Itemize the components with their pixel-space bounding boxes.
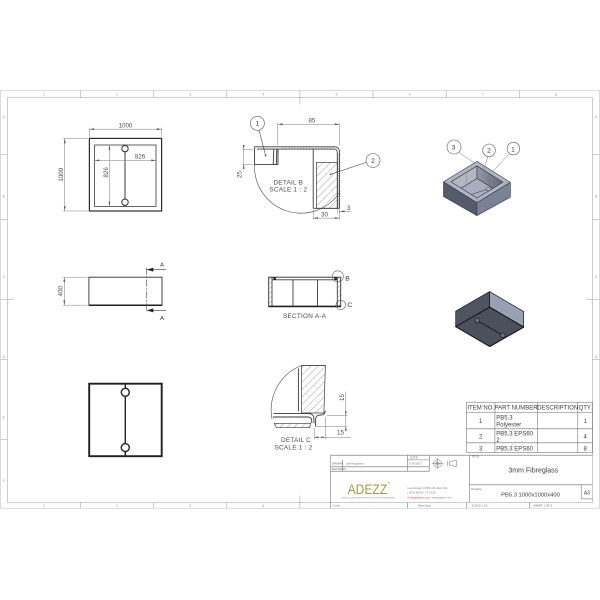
svg-text:SHEET 1 OF 5: SHEET 1 OF 5: [533, 504, 553, 508]
svg-text:1000: 1000: [58, 167, 65, 181]
svg-text:2: 2: [116, 504, 118, 508]
svg-text:1: 1: [256, 121, 260, 128]
svg-text:DETAIL B: DETAIL B: [273, 179, 303, 186]
svg-text:2: 2: [371, 158, 375, 165]
svg-text:e info@adezz.com / www.adezz.c: e info@adezz.com / www.adezz.com: [408, 496, 453, 500]
svg-text:A: A: [160, 263, 164, 269]
svg-text:1000: 1000: [119, 123, 133, 130]
svg-text:3: 3: [189, 504, 191, 508]
svg-text:85: 85: [308, 118, 315, 125]
svg-text:B: B: [345, 276, 350, 283]
svg-text:400: 400: [58, 285, 65, 296]
svg-text:DETAIL C: DETAIL C: [281, 437, 311, 444]
svg-text:Mass (kg): Mass (kg): [418, 504, 431, 508]
svg-text:Color: Color: [333, 504, 340, 508]
svg-text:Leemstraat 4, 5451 AB Uden (NL: Leemstraat 4, 5451 AB Uden (NL).: [408, 486, 449, 490]
svg-text:3: 3: [189, 93, 191, 97]
svg-text:2: 2: [116, 93, 118, 97]
svg-text:t 0031 (0)413- 27 41 68,: t 0031 (0)413- 27 41 68,: [408, 491, 437, 495]
svg-text:PB5.3 EPS60: PB5.3 EPS60: [496, 432, 533, 438]
svg-text:DATE: DATE: [410, 456, 418, 460]
svg-text:1: 1: [43, 93, 45, 97]
svg-text:SECTION A-A: SECTION A-A: [283, 313, 327, 320]
svg-text:-: -: [368, 504, 369, 508]
svg-text:826: 826: [135, 154, 146, 161]
svg-text:PB5.3 EPS60: PB5.3 EPS60: [496, 446, 533, 452]
svg-text:3: 3: [347, 205, 351, 212]
svg-text:A: A: [160, 316, 164, 322]
svg-text:ITEM NO.: ITEM NO.: [467, 406, 494, 412]
svg-text:Polyester: Polyester: [496, 422, 521, 428]
svg-text:DRAWN: DRAWN: [332, 462, 343, 466]
svg-text:REVISION: REVISION: [332, 467, 346, 471]
svg-text:4: 4: [262, 93, 264, 97]
svg-text:7: 7: [482, 93, 484, 97]
svg-text:QTY.: QTY.: [579, 406, 593, 412]
svg-text:A3: A3: [584, 490, 590, 496]
svg-text:8: 8: [555, 93, 557, 97]
svg-text:3-10-2017: 3-10-2017: [409, 462, 423, 466]
svg-text:C: C: [347, 302, 352, 309]
svg-text:Drawing: Drawing: [471, 487, 482, 491]
svg-text:1: 1: [511, 146, 515, 153]
svg-text:Jurk Kuppens: Jurk Kuppens: [346, 462, 364, 466]
svg-text:30: 30: [321, 212, 328, 219]
svg-text:4: 4: [262, 504, 264, 508]
svg-text:1: 1: [43, 504, 45, 508]
svg-text:5: 5: [336, 93, 338, 97]
svg-text:ADEZZ: ADEZZ: [348, 481, 388, 497]
svg-text:PART NUMBER: PART NUMBER: [495, 406, 539, 412]
svg-text:25: 25: [237, 171, 244, 178]
svg-text:SCALE 1 : 2: SCALE 1 : 2: [269, 186, 307, 193]
svg-text:15: 15: [339, 394, 346, 401]
svg-text:DESCRIPTION: DESCRIPTION: [537, 406, 578, 412]
svg-text:WORLD CLASS GARDEN PRODUCTS FO: WORLD CLASS GARDEN PRODUCTS FOR PROFESSI…: [342, 496, 396, 499]
svg-text:3mm Fibreglass: 3mm Fibreglass: [508, 467, 558, 474]
svg-text:PB5.3 1000x1000x400: PB5.3 1000x1000x400: [501, 492, 560, 498]
svg-text:6: 6: [409, 93, 411, 97]
svg-text:826: 826: [103, 167, 110, 178]
svg-text:SCALE 1 : 2: SCALE 1 : 2: [275, 444, 313, 451]
svg-text:F: F: [3, 479, 5, 483]
svg-text:SCALE 1:50: SCALE 1:50: [472, 504, 488, 508]
svg-text:2: 2: [487, 147, 491, 154]
svg-text:15: 15: [337, 430, 344, 437]
svg-text:TITLE: TITLE: [471, 455, 479, 459]
svg-text:PB5.3: PB5.3: [496, 416, 513, 422]
svg-text:3: 3: [452, 144, 456, 151]
